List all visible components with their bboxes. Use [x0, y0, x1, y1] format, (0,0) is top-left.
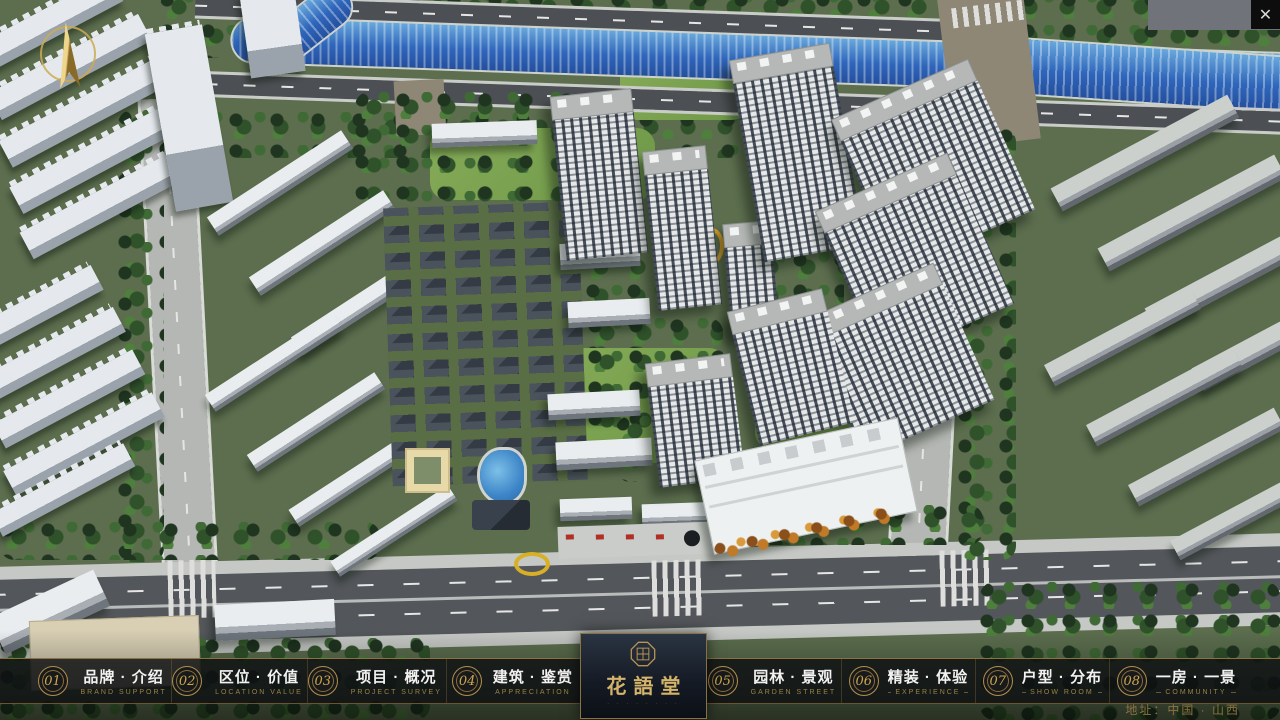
crosswalk: [651, 559, 702, 616]
nav-number-badge: 03: [308, 666, 338, 696]
building-slab: [205, 312, 343, 412]
nav-label-zh: 项目 · 概况: [356, 666, 436, 687]
presentation-screen: ✕ 01 品牌 · 介绍 BRAND SUPPORT 02 区位 · 价值 LO…: [0, 0, 1280, 720]
nav-item-location-value[interactable]: 02 区位 · 价值 LOCATION VALUE: [171, 659, 307, 703]
nav-label-en: GARDEN STREET: [751, 689, 837, 696]
nav-item-architecture[interactable]: 04 建筑 · 鉴赏 APPRECIATION: [446, 659, 580, 703]
nav-label-en: COMMUNITY: [1165, 689, 1226, 696]
nav-label-zh: 园林 · 景观: [753, 666, 833, 687]
building-lowrise: [555, 438, 652, 471]
nav-number-badge: 08: [1117, 666, 1147, 696]
building-slab: [1086, 348, 1243, 447]
building-lowrise: [547, 390, 640, 421]
logo-title: 花語堂: [599, 670, 687, 699]
nav-label-en: BRAND SUPPORT: [81, 689, 167, 696]
nav-label-en: LOCATION VALUE: [215, 689, 303, 696]
address-text: 地址：中国 · 山西: [1125, 701, 1240, 718]
building-slab: [247, 372, 385, 472]
nav-spacer: [1243, 659, 1280, 703]
building-lowrise: [432, 120, 538, 148]
building-slab: [1128, 408, 1280, 507]
entrance-plaza: [557, 521, 726, 559]
project-logo[interactable]: 花語堂 · · · · · · · ·: [580, 633, 707, 719]
nav-label-zh: 区位 · 价值: [219, 666, 299, 687]
nav-number-badge: 05: [708, 666, 738, 696]
nav-item-experience[interactable]: 06 精装 · 体验 EXPERIENCE: [841, 659, 975, 703]
logo-subtitle: · · · · · · · ·: [607, 701, 680, 707]
clubhouse: [405, 448, 450, 493]
masterplan-rendering: [0, 0, 1280, 720]
building-highrise: [239, 0, 305, 78]
nav-label-en: SHOW ROOM: [1030, 689, 1094, 696]
tree-cluster: [0, 522, 380, 560]
nav-label-en: PROJECT SURVEY: [351, 689, 442, 696]
swimming-pool: [480, 450, 524, 502]
compass-icon: [40, 26, 96, 82]
nav-number-badge: 04: [452, 666, 482, 696]
nav-label-zh: 精装 · 体验: [888, 666, 968, 687]
nav-label-en: APPRECIATION: [495, 689, 571, 696]
nav-label-en: EXPERIENCE: [895, 689, 960, 696]
nav-spacer: [0, 659, 37, 703]
nav-number-badge: 02: [172, 666, 202, 696]
close-button[interactable]: ✕: [1251, 0, 1280, 29]
pavilion-roof: [472, 500, 530, 530]
crosswalk: [167, 559, 217, 618]
nav-label-zh: 建筑 · 鉴赏: [493, 666, 573, 687]
nav-item-brand-intro[interactable]: 01 品牌 · 介绍 BRAND SUPPORT: [37, 659, 171, 703]
nav-number-badge: 06: [849, 666, 879, 696]
nav-number-badge: 01: [38, 666, 68, 696]
building-tower: [550, 88, 649, 261]
building-slab: [249, 190, 395, 296]
entrance-canopy: [560, 497, 633, 521]
seal-icon: [630, 641, 656, 667]
nav-label-zh: 一房 · 一景: [1156, 666, 1236, 687]
building-lowrise: [567, 298, 650, 328]
nav-number-badge: 07: [983, 666, 1013, 696]
nav-item-community[interactable]: 08 一房 · 一景 COMMUNITY: [1109, 659, 1243, 703]
nav-label-zh: 品牌 · 介绍: [83, 666, 163, 687]
playground: [514, 552, 550, 576]
nav-item-project-survey[interactable]: 03 项目 · 概况 PROJECT SURVEY: [307, 659, 446, 703]
building-slab: [1044, 288, 1201, 387]
nav-item-garden-landscape[interactable]: 05 园林 · 景观 GARDEN STREET: [707, 659, 841, 703]
nav-label-zh: 户型 · 分布: [1022, 666, 1102, 687]
nav-item-floorplans[interactable]: 07 户型 · 分布 SHOW ROOM: [975, 659, 1109, 703]
bottom-navigation-bar: 01 品牌 · 介绍 BRAND SUPPORT 02 区位 · 价值 LOCA…: [0, 658, 1280, 704]
